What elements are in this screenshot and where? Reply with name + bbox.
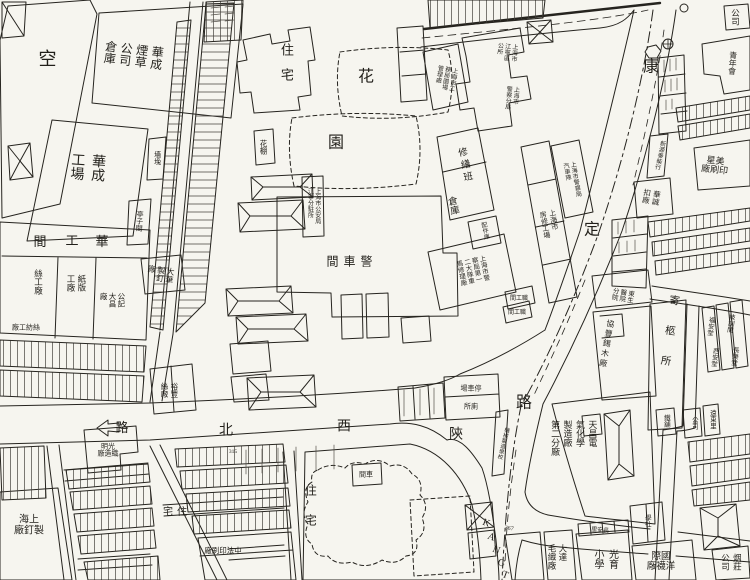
map-label-parts-store: 配件庫	[479, 222, 489, 241]
map-label-police-motor-team: 上海市警察局汽車隊	[561, 161, 581, 199]
map-label-yufeng-silk: 裕豐絲廠	[160, 383, 178, 398]
map-label-police-substation: 上海市公安局江寧分駐所	[306, 188, 320, 224]
label-line: 里安長	[591, 527, 610, 535]
map-label-tobacco-shop-co: 烟莊公司	[721, 554, 742, 571]
map-label-dada-wool-mill: 大達毛織廠	[547, 544, 567, 570]
map-label-plot-315: 315	[229, 450, 237, 456]
map-label-parks-admin: 上海市工務局園場管理處	[433, 64, 458, 91]
label-column: 上海市公安局	[314, 188, 320, 224]
map-label-huacheng-button-factory: 華誠扣廠	[641, 188, 661, 206]
label-column: 公記	[117, 293, 125, 308]
map-label-qiangtu: 墻堍	[153, 151, 160, 165]
map-char-st-shan: 陝	[449, 429, 463, 444]
map-char-rom-a: A	[486, 532, 496, 544]
label-column: 裕豐	[170, 383, 178, 398]
label-column: 扣廠	[641, 188, 651, 204]
map-label-iron-shop: 鐵舖	[662, 415, 669, 428]
label-column: 上海市	[509, 43, 517, 61]
map-label-zhongfa-printing: 廠刷印法中	[204, 547, 242, 555]
map-label-changan-li: 里安長	[591, 527, 610, 535]
map-label-jixun-jian: 技訓間	[724, 313, 733, 333]
map-label-police-vehicle-repair: 上海市警察局第一二大隊車馬修理廠	[454, 255, 489, 287]
label-line: 廠刷印	[701, 165, 729, 177]
map-label-jiangning-district-office: 上海市江寧區公所	[495, 42, 517, 62]
map-label-residence-southwest: 宅住	[163, 508, 191, 519]
map-label-dongsheng-hospital-branch: 東生醫院分院	[609, 287, 633, 304]
label-column: 紙版	[77, 275, 86, 292]
label-column: 工場	[67, 152, 84, 181]
label-column: 公司	[118, 41, 133, 66]
map-char-st-lu-arrow: 路	[115, 421, 128, 435]
map-label-guangyu-primary-school: 光育小學	[592, 549, 617, 569]
map-label-vacant-lot: 空	[37, 49, 56, 67]
map-label-shanghai-nail-factory: 海上廠釘製	[14, 516, 44, 537]
map-label-huacheng-tobacco-warehouse: 華成煙草公司倉庫	[102, 39, 164, 70]
label-column: 毛織廠	[547, 544, 556, 570]
label-line: 間車警	[326, 256, 377, 269]
label-line: 場車停	[461, 385, 482, 392]
label-column: 大昌	[108, 293, 116, 308]
map-label-xinyuantai-store: 新源泰柴行	[653, 140, 665, 171]
label-line: 間工職	[508, 310, 526, 316]
map-label-parking-ground: 場車停	[461, 385, 482, 392]
label-line: 間工職	[510, 296, 528, 302]
label-column: 製造廠	[562, 420, 571, 447]
map-char-rom-t: T	[500, 570, 509, 580]
label-column: 華成	[149, 45, 164, 70]
label-column: 烟莊	[733, 554, 742, 571]
map-label-residence-blob: 住宅	[304, 484, 317, 544]
map-char-huagongjian-1: 華	[95, 235, 108, 249]
map-label-housing-repair-works: 上海市房修工場	[538, 209, 559, 239]
map-label-staff-room-2: 間工職	[508, 310, 526, 316]
label-column: 江寧分駐所	[306, 188, 312, 218]
label-column: 公司	[721, 554, 730, 571]
label-column: 小學	[592, 549, 603, 569]
map-label-huacheng-works: 華成工場	[67, 152, 104, 182]
map-label-guangming-weaving: 明光廠造織	[98, 444, 119, 459]
map-label-gongji-dachang: 公記大昌廠	[99, 293, 125, 308]
label-column: 廠	[147, 264, 156, 273]
map-label-fuan-tang: 福安堂	[704, 316, 713, 336]
label-column: 華誠	[651, 190, 661, 206]
label-column: 氣化學	[575, 420, 584, 447]
map-label-youth-association: 青年會	[727, 51, 737, 76]
label-line: 廠襪洋	[647, 563, 676, 573]
map-label-xian-tang: 西安堂	[708, 347, 717, 367]
map-label-garage-box: 間車	[359, 471, 373, 478]
map-label-toilet: 所廁	[464, 403, 478, 410]
label-column: 光育	[606, 549, 617, 569]
label-column: 大華	[164, 267, 175, 284]
label-column: 天昌電	[587, 420, 596, 447]
map-label-police-branch: 上海市警察分局	[503, 85, 519, 110]
label-column: 倉庫	[102, 39, 117, 64]
map-label-plot-367: 367	[504, 525, 514, 533]
map-label-meixing-printing: 星美廠刷印	[701, 155, 730, 177]
label-column: 煙草	[133, 43, 148, 68]
map-label-changle-tang: 長樂堂	[728, 346, 737, 366]
map-char-st-kang: 康	[643, 60, 659, 77]
map-label-warehouse: 倉庫	[444, 196, 458, 217]
map-label-machinery-school: 機械製造學校	[495, 426, 509, 459]
label-column: 華成	[88, 153, 105, 182]
map-label-study-society: 學社	[643, 515, 650, 528]
label-column: 大達	[558, 544, 567, 561]
label-column: 公所	[495, 42, 502, 55]
map-labels-layer: 康定路陝西北路花園華工間KANGT空華成煙草公司倉庫華成工場墻堍亭子間絲工廠紙版…	[0, 0, 750, 580]
map-char-st-ding: 定	[584, 223, 600, 240]
map-label-repair-team: 修繕班	[454, 147, 472, 186]
label-line: 廠工紡絲	[12, 324, 40, 331]
map-char-rom-n: N	[491, 545, 501, 557]
map-label-silk-works: 絲工廠	[34, 269, 43, 295]
label-line: 廠釘製	[14, 526, 44, 537]
label-line: 宅住	[163, 508, 191, 519]
map-label-coffin-repository: 寄柩所	[656, 294, 680, 386]
map-char-rom-k: K	[481, 518, 491, 530]
label-column: 警察分局	[503, 85, 511, 109]
map-viewport: 康定路陝西北路花園華工間KANGT空華成煙草公司倉庫華成工場墻堍亭子間絲工廠紙版…	[0, 0, 750, 580]
map-label-dahua-nail-factory: 大華製釘廠	[145, 264, 174, 284]
map-char-st-bei: 北	[219, 425, 233, 440]
label-line: 所廁	[464, 403, 478, 410]
label-column: 工廠	[66, 275, 75, 292]
label-column: 上海市	[511, 86, 519, 104]
label-column: 廠	[99, 293, 107, 301]
map-label-xiefeng-tin-timber: 協豐錫木廠	[598, 319, 615, 370]
map-label-silk-spinning: 廠工紡絲	[12, 324, 40, 331]
label-line: 海上	[14, 516, 44, 527]
label-line: 廠刷印法中	[204, 547, 242, 555]
map-char-huagongjian-3: 間	[33, 235, 46, 249]
map-char-st-lu-kangding: 路	[516, 396, 532, 413]
map-label-company-topright: 公司	[731, 9, 740, 26]
map-label-company-small: 公司	[690, 417, 697, 430]
map-char-huagongjian-2: 工	[65, 234, 78, 248]
map-label-police-garage: 間車警	[326, 256, 377, 269]
map-label-tingzijian: 亭子間	[135, 210, 144, 231]
map-char-garden-hua: 花	[358, 70, 374, 87]
label-column: 第二分廠	[550, 420, 559, 456]
map-label-residence-north: 住宅	[279, 43, 293, 93]
label-column: 東生	[624, 289, 633, 303]
map-label-tianchang-electrochemical: 天昌電氣化學製造廠第二分廠	[550, 420, 597, 456]
label-line: 間車	[359, 471, 373, 478]
map-label-international-hosiery: 際國廠襪洋	[647, 553, 676, 573]
map-label-paperboard-works: 紙版工廠	[66, 275, 86, 292]
map-char-st-xi: 西	[337, 421, 351, 436]
label-line: 廠造織	[98, 451, 119, 458]
map-label-staff-room-1: 間工職	[510, 296, 528, 302]
label-column: 絲廠	[160, 383, 168, 398]
map-label-flower-shed: 花棚	[259, 140, 267, 155]
map-char-garden-yuan: 園	[328, 136, 344, 153]
map-label-yuandong-li: 遠東里	[708, 409, 715, 429]
